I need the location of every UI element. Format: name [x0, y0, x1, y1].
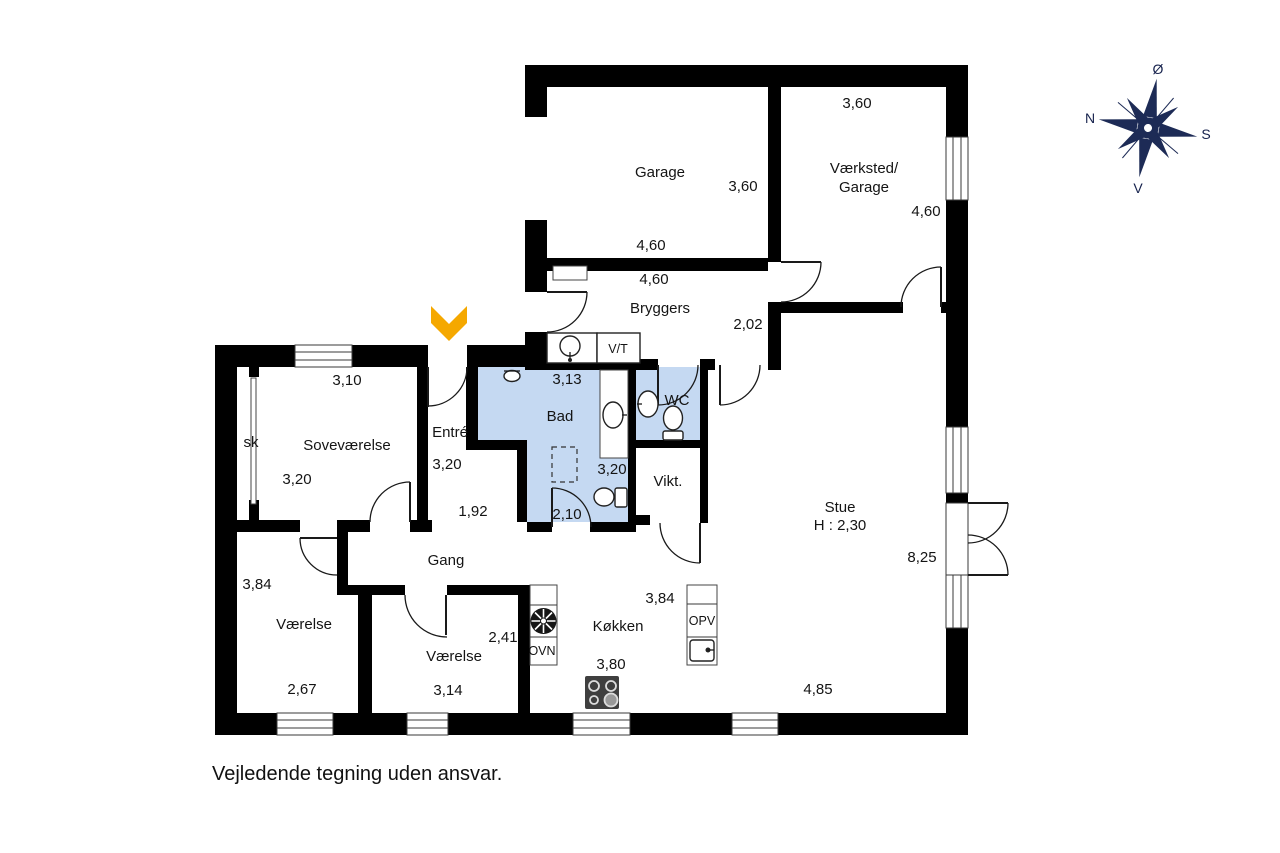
- sovevaerelse-label: Soveværelse: [303, 437, 391, 454]
- bad-dim-top: 3,13: [552, 371, 581, 388]
- vaerelse-left-length: 3,84: [242, 576, 271, 593]
- wc-sink-icon: [637, 391, 658, 417]
- vaerksted-length: 4,60: [911, 203, 940, 220]
- bryggers-label: Bryggers: [630, 300, 690, 317]
- compass-north-label: N: [1085, 110, 1095, 126]
- wall-segment: [946, 313, 968, 427]
- kitchen-sink-icon: [690, 640, 714, 661]
- wall-segment: [946, 200, 968, 313]
- koekken-label: Køkken: [593, 618, 644, 635]
- wc-label: WC: [665, 392, 690, 409]
- bryggers-stue-door: [720, 365, 760, 405]
- stue-ceiling-height: H : 2,30: [814, 517, 867, 534]
- entrance-door: [428, 367, 467, 407]
- koekken-width: 3,84: [645, 590, 674, 607]
- wall-segment: [517, 450, 527, 522]
- vaerelse-right-label: Værelse: [426, 648, 482, 665]
- garage-label: Garage: [635, 164, 685, 181]
- vaerksted-label-line1: Værksted/: [830, 160, 899, 177]
- bathroom-toilet-icon: [594, 488, 627, 507]
- bryggers-length: 4,60: [639, 271, 668, 288]
- stue-length: 8,25: [907, 549, 936, 566]
- wall-segment: [249, 367, 259, 377]
- wall-segment: [525, 87, 547, 117]
- bad-label: Bad: [547, 408, 574, 425]
- garage-width: 3,60: [728, 178, 757, 195]
- sk-label: sk: [244, 434, 260, 451]
- bryggers-width: 2,02: [733, 316, 762, 333]
- bedroom-door: [370, 482, 410, 522]
- wall-segment: [466, 440, 527, 450]
- bathroom-small-sink-icon: [504, 371, 520, 382]
- entre-dim1: 3,20: [432, 456, 461, 473]
- washing-machine-icon: [547, 333, 597, 363]
- garage-length: 4,60: [636, 237, 665, 254]
- stue-french-doors: [946, 503, 1008, 575]
- wall-segment: [946, 87, 968, 137]
- vaerelse-left-label: Værelse: [276, 616, 332, 633]
- cooktop-icon: [585, 676, 619, 709]
- stue-width: 4,85: [803, 681, 832, 698]
- window: [732, 713, 778, 735]
- wc-toilet-icon: [663, 406, 683, 440]
- vaerksted-label-line2: Garage: [839, 179, 889, 196]
- wall-segment: [708, 359, 715, 370]
- wall-segment: [768, 302, 781, 370]
- vikt-label: Vikt.: [654, 473, 683, 490]
- bryggers-vaerksted-door: [781, 262, 821, 302]
- vaerksted-width: 3,60: [842, 95, 871, 112]
- compass-west-label: V: [1133, 180, 1143, 196]
- entrance-arrow-icon: [431, 306, 467, 341]
- wall-segment: [630, 713, 732, 735]
- wall-segment: [215, 345, 237, 713]
- vt-label: V/T: [608, 342, 628, 356]
- entre-label: Entré: [432, 424, 468, 441]
- bryggers-cabinet: [553, 266, 587, 280]
- floor-plan-page: Ø N S V Garage 3,60 4,60 Værksted/ Garag…: [0, 0, 1280, 853]
- wall-segment: [525, 65, 968, 87]
- wall-segment: [525, 220, 547, 292]
- koekken-length: 3,80: [596, 656, 625, 673]
- compass-rose: Ø N S V: [1085, 61, 1211, 196]
- wall-segment: [352, 345, 428, 367]
- window: [946, 137, 968, 200]
- extractor-fan-icon: [531, 608, 557, 634]
- wall-segment: [525, 332, 547, 370]
- sovevaerelse-length: 3,20: [282, 471, 311, 488]
- wall-segment: [700, 359, 708, 523]
- wall-segment: [527, 522, 552, 532]
- sovevaerelse-width: 3,10: [332, 372, 361, 389]
- bad-dim-bottom: 2,10: [552, 506, 581, 523]
- compass-east-label: Ø: [1153, 61, 1164, 77]
- vaerelse-left-width: 2,67: [287, 681, 316, 698]
- wall-segment: [768, 87, 781, 262]
- entre-dim2: 1,92: [458, 503, 487, 520]
- floor-plan-drawing: Ø N S V Garage 3,60 4,60 Værksted/ Garag…: [0, 0, 1280, 853]
- bryggers-side-door: [547, 292, 587, 332]
- window: [295, 345, 352, 367]
- wall-segment: [237, 345, 295, 367]
- wall-segment: [628, 440, 700, 448]
- wall-segment: [447, 585, 530, 595]
- opv-label: OPV: [689, 614, 716, 628]
- wall-segment: [781, 302, 903, 313]
- stue-label: Stue: [825, 499, 856, 516]
- window: [407, 713, 448, 735]
- vaerelse-right-length: 3,14: [433, 682, 462, 699]
- vaerelse-right-width: 2,41: [488, 629, 517, 646]
- wall-segment: [215, 713, 277, 735]
- disclaimer-text: Vejledende tegning uden ansvar.: [212, 763, 502, 786]
- wall-segment: [237, 520, 300, 532]
- wall-segment: [348, 520, 370, 532]
- wall-segment: [448, 713, 573, 735]
- wall-segment: [946, 493, 968, 503]
- vaerksted-stue-door: [901, 267, 941, 307]
- room-right-door: [405, 595, 447, 637]
- window: [277, 713, 333, 735]
- wall-segment: [941, 302, 968, 313]
- bad-dim-mid: 3,20: [597, 461, 626, 478]
- wall-segment: [333, 713, 407, 735]
- wall-segment: [358, 595, 372, 713]
- wall-segment: [337, 585, 405, 595]
- vikt-door: [660, 523, 700, 563]
- window: [946, 427, 968, 493]
- wall-segment: [417, 367, 428, 522]
- ovn-label: OVN: [528, 644, 555, 658]
- gang-label: Gang: [428, 552, 465, 569]
- bathroom-vanity: [600, 370, 628, 458]
- wall-segment: [410, 520, 432, 532]
- wall-segment: [337, 520, 348, 590]
- wall-segment: [590, 522, 636, 532]
- window: [946, 575, 968, 628]
- compass-south-label: S: [1201, 126, 1210, 142]
- wall-segment: [778, 713, 968, 735]
- room-left-door: [300, 538, 337, 575]
- wall-segment: [467, 345, 525, 367]
- window: [573, 713, 630, 735]
